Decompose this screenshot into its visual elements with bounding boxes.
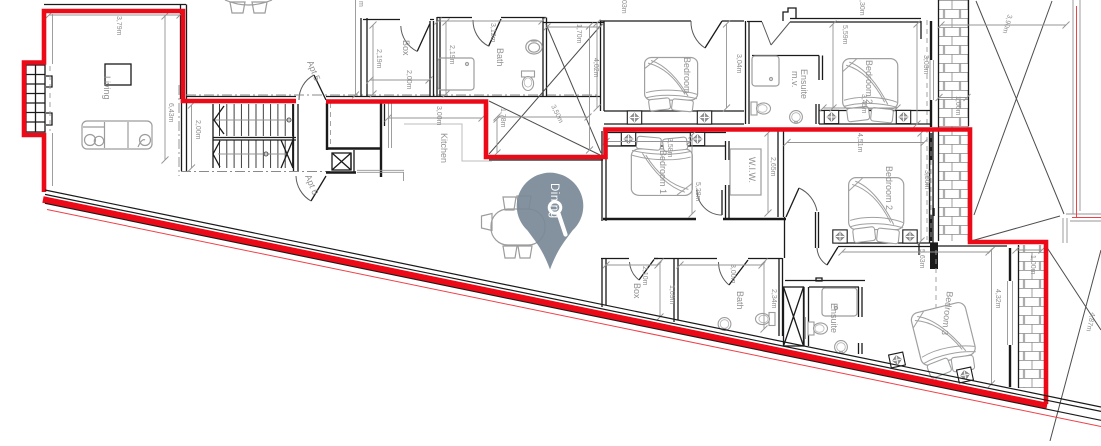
svg-text:3,04m: 3,04m bbox=[735, 54, 742, 74]
svg-text:5,28m: 5,28m bbox=[694, 182, 701, 202]
svg-text:3,03m: 3,03m bbox=[922, 55, 929, 75]
svg-text:3,12m: 3,12m bbox=[489, 23, 496, 43]
svg-text:Box: Box bbox=[401, 40, 411, 56]
svg-text:,30m: ,30m bbox=[858, 0, 865, 16]
svg-text:6,43m: 6,43m bbox=[167, 103, 174, 123]
svg-text:Living: Living bbox=[102, 76, 112, 100]
svg-text:2,34m: 2,34m bbox=[770, 289, 777, 309]
svg-text:Bath: Bath bbox=[735, 291, 745, 310]
svg-text:2,65m: 2,65m bbox=[769, 157, 776, 177]
svg-text:5,63m: 5,63m bbox=[918, 249, 925, 269]
svg-text:3,00m: 3,00m bbox=[435, 106, 442, 126]
svg-text:5,59m: 5,59m bbox=[841, 25, 848, 45]
svg-text:m: m bbox=[357, 1, 364, 7]
svg-text:2,00m: 2,00m bbox=[405, 70, 412, 90]
svg-text:1,69m: 1,69m bbox=[668, 285, 675, 305]
svg-text:Bedroom 2: Bedroom 2 bbox=[864, 60, 874, 104]
svg-text:2,19m: 2,19m bbox=[448, 45, 455, 65]
svg-text:3,50m: 3,50m bbox=[923, 170, 930, 190]
svg-text:Bedroom: Bedroom bbox=[682, 57, 692, 94]
svg-text:Bedroom 2: Bedroom 2 bbox=[884, 166, 894, 210]
svg-text:2,00m: 2,00m bbox=[194, 120, 201, 140]
svg-text:1,70m: 1,70m bbox=[575, 24, 582, 44]
svg-text:03m: 03m bbox=[620, 0, 627, 14]
svg-text:4,51m: 4,51m bbox=[856, 133, 863, 153]
svg-text:4,02m: 4,02m bbox=[592, 58, 599, 78]
svg-text:3,79m: 3,79m bbox=[115, 16, 122, 36]
svg-text:1,78m: 1,78m bbox=[499, 108, 506, 128]
svg-text:Kitchen: Kitchen bbox=[439, 133, 449, 163]
svg-text:m.v.: m.v. bbox=[790, 71, 800, 87]
svg-text:3,58m: 3,58m bbox=[666, 138, 673, 158]
svg-text:Box: Box bbox=[632, 283, 642, 299]
svg-text:1,00m: 1,00m bbox=[1029, 255, 1036, 275]
svg-text:W.I.W.: W.I.W. bbox=[747, 157, 757, 183]
svg-text:Bath: Bath bbox=[495, 48, 505, 67]
svg-text:2,19m: 2,19m bbox=[375, 49, 382, 69]
svg-text:1,00m: 1,00m bbox=[954, 96, 961, 116]
svg-text:Ensuite: Ensuite bbox=[829, 303, 839, 333]
svg-text:3,00m: 3,00m bbox=[729, 264, 736, 284]
svg-text:4,32m: 4,32m bbox=[994, 289, 1001, 309]
